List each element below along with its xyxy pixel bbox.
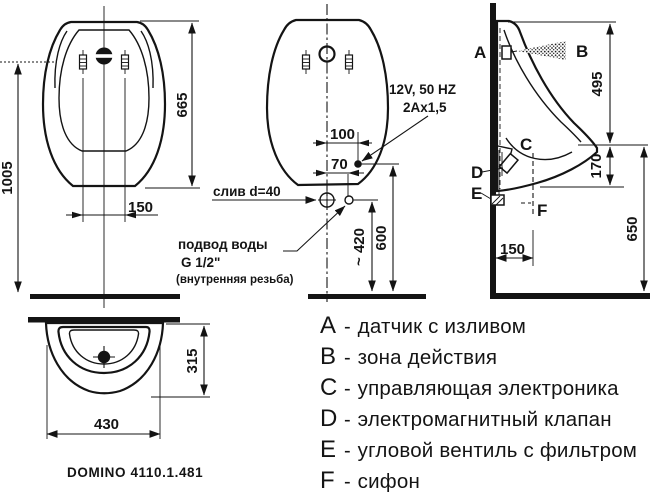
legend: A-датчик с изливом B-зона действия C-упр…	[320, 312, 637, 498]
legend-item-zone: B-зона действия	[320, 343, 637, 374]
marker-f-label: F	[537, 201, 547, 220]
side-wall-line	[490, 3, 496, 299]
dim-420-label: ~ 420	[351, 228, 368, 266]
power-label: 12V, 50 HZ	[389, 82, 456, 97]
marker-e-label: E	[471, 184, 482, 203]
dim-70-label: 70	[331, 156, 348, 173]
legend-letter: B	[320, 343, 338, 371]
dim-665-label: 665	[174, 92, 191, 117]
legend-separator: -	[344, 378, 351, 401]
side-floor-line	[490, 293, 650, 299]
dim-315-label: 315	[184, 348, 201, 373]
legend-letter: F	[320, 467, 338, 495]
legend-text: зона действия	[358, 346, 497, 370]
legend-item-angle-valve: E-угловой вентиль с фильтром	[320, 436, 637, 467]
dim-150-side-label: 150	[500, 241, 525, 258]
model-number-label: DOMINO 4110.1.481	[67, 465, 203, 480]
legend-text: сифон	[358, 470, 420, 494]
technical-drawing-sheet: 1005 665 150 315 430	[0, 0, 650, 500]
legend-item-valve: D-электромагнитный клапан	[320, 405, 637, 436]
legend-separator: -	[344, 316, 351, 339]
legend-text: управляющая электроника	[358, 377, 619, 401]
legend-separator: -	[344, 409, 351, 432]
legend-letter: E	[320, 436, 338, 464]
dim-1005-label: 1005	[0, 161, 16, 194]
dim-430-label: 430	[94, 416, 119, 433]
cable-label: 2Ax1,5	[403, 100, 447, 115]
legend-text: электромагнитный клапан	[358, 408, 612, 432]
plan-view: 315 430	[28, 317, 210, 439]
marker-c-label: C	[520, 135, 532, 154]
dim-495-label: 495	[589, 71, 606, 96]
legend-item-sensor: A-датчик с изливом	[320, 312, 637, 343]
water-leader-line	[283, 206, 345, 251]
angle-valve-icon	[491, 195, 504, 205]
rear-view: 100 70 ~ 420 600 12V, 50 HZ 2Ax1,5 слив …	[176, 4, 456, 302]
legend-item-siphon: F-сифон	[320, 467, 637, 498]
legend-letter: C	[320, 374, 338, 402]
dim-170-label: 170	[588, 153, 605, 178]
dim-150-front-label: 150	[128, 199, 153, 216]
front-view: 1005 665 150	[0, 6, 200, 308]
water-note-label: (внутренняя резьба)	[176, 274, 294, 286]
plan-wall-line	[28, 317, 180, 323]
rear-floor-line	[308, 294, 426, 299]
marker-a-label: A	[474, 43, 486, 62]
water-inlet-icon	[345, 196, 353, 204]
legend-letter: D	[320, 405, 338, 433]
legend-separator: -	[344, 440, 351, 463]
front-floor-line	[30, 294, 180, 299]
legend-separator: -	[344, 471, 351, 494]
sensor-icon	[502, 46, 511, 59]
legend-text: датчик с изливом	[358, 315, 526, 339]
water-thread-label: G 1/2"	[181, 255, 220, 270]
legend-letter: A	[320, 312, 338, 340]
dim-650-label: 650	[624, 216, 641, 241]
drain-label: слив d=40	[213, 184, 281, 199]
legend-separator: -	[344, 347, 351, 370]
rear-drain-icon	[318, 190, 336, 210]
legend-text: угловой вентиль с фильтром	[358, 439, 637, 463]
dim-100-label: 100	[330, 126, 355, 143]
marker-d-label: D	[471, 163, 483, 182]
dim-600-label: 600	[373, 225, 390, 250]
side-view: 495 170 650 150 A B C D E F	[471, 3, 650, 299]
legend-item-electronics: C-управляющая электроника	[320, 374, 637, 405]
marker-b-label: B	[576, 42, 588, 61]
water-supply-label: подвод воды	[178, 237, 268, 252]
